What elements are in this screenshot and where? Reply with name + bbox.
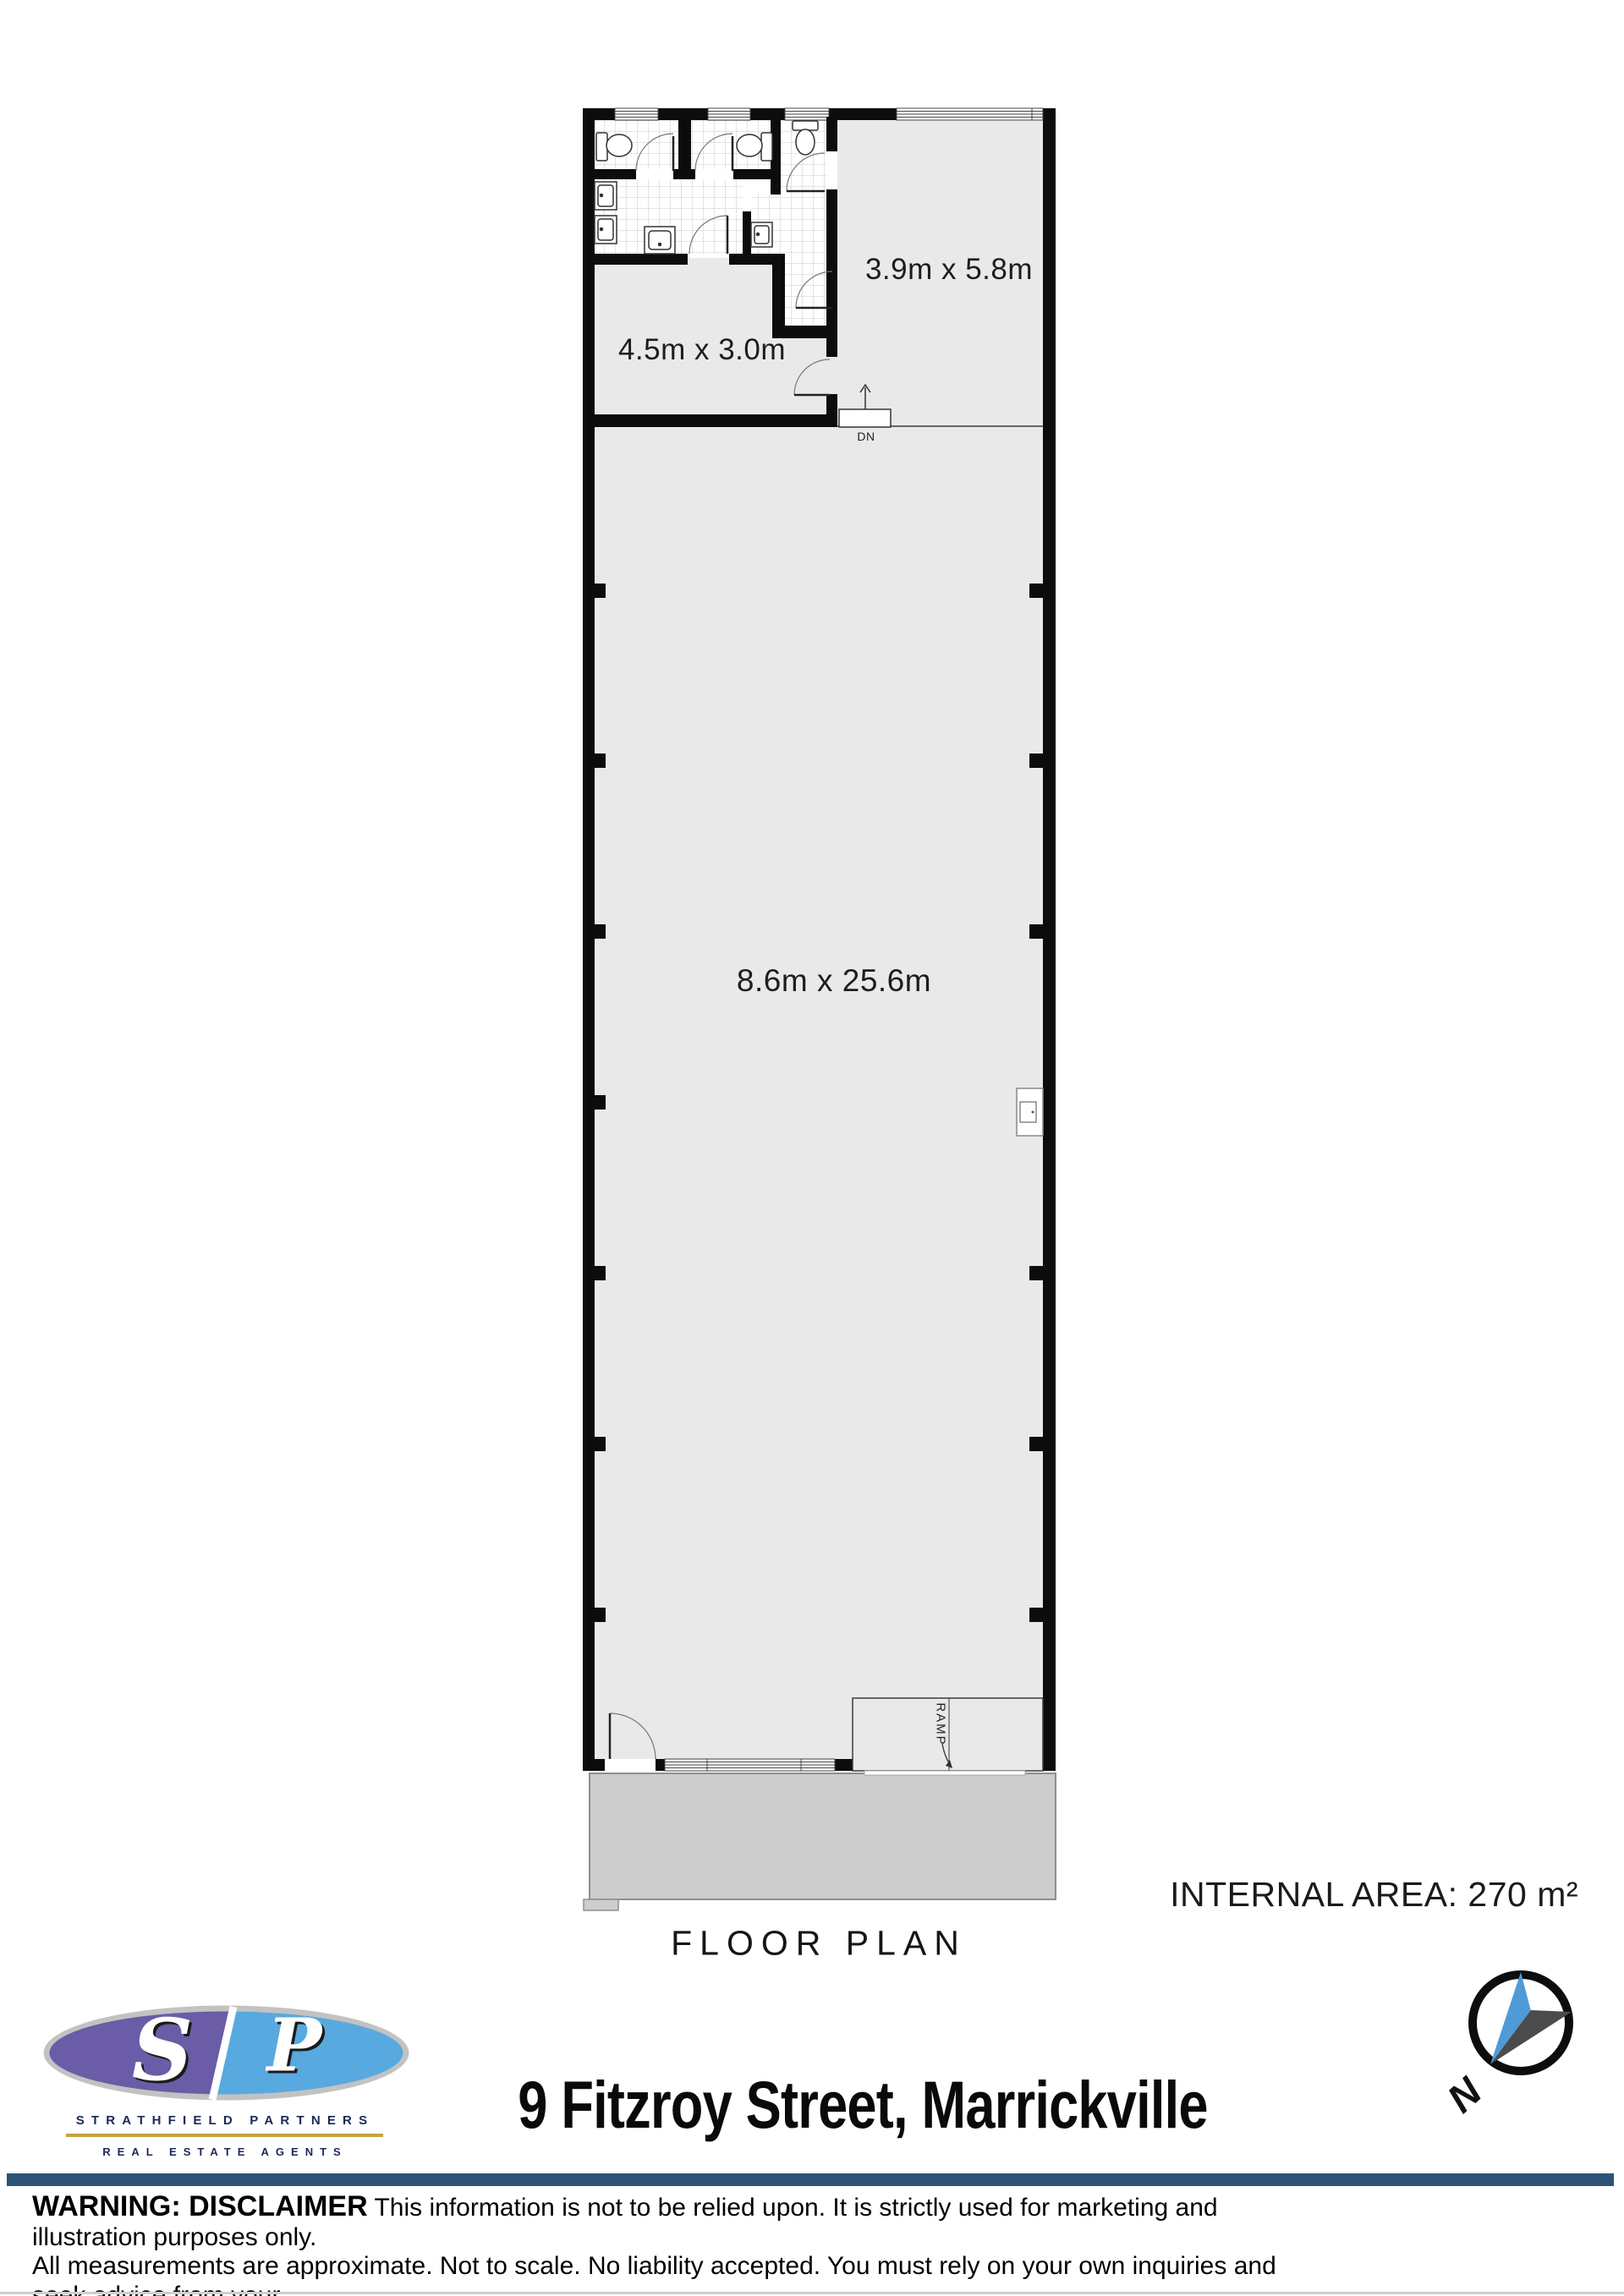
floor-plan-title: FLOOR PLAN bbox=[671, 1924, 967, 1964]
logo-letter-s: S bbox=[132, 2000, 193, 2100]
footer-divider-bar bbox=[7, 2173, 1614, 2186]
logo-letter-p: P bbox=[267, 2003, 322, 2089]
wall-cupboard bbox=[1017, 1088, 1043, 1136]
internal-area-text: INTERNAL AREA: 270 m² bbox=[1015, 1875, 1578, 1915]
logo-icon bbox=[43, 2004, 409, 2102]
page-bottom-rule bbox=[0, 2292, 1624, 2294]
room-label-39: 3.9m x 5.8m bbox=[865, 253, 1033, 287]
disclaimer-text: WARNING: DISCLAIMER This information is … bbox=[32, 2192, 1309, 2296]
compass-icon bbox=[1473, 1972, 1572, 2071]
porch bbox=[590, 1773, 1056, 1899]
ramp-label: RAMP bbox=[934, 1702, 948, 1745]
room-label-main: 8.6m x 25.6m bbox=[737, 963, 931, 999]
disclaimer-lead: WARNING: DISCLAIMER bbox=[32, 2190, 368, 2222]
disclaimer-line-2: All measurements are approximate. Not to… bbox=[32, 2252, 1309, 2296]
window-top-1 bbox=[615, 108, 658, 120]
company-name: STRATHFIELD PARTNERS bbox=[34, 2113, 416, 2128]
window-top-2 bbox=[708, 108, 750, 120]
sink-icon bbox=[595, 216, 617, 244]
room-label-45: 4.5m x 3.0m bbox=[618, 333, 786, 367]
window-top-long bbox=[897, 108, 1043, 120]
ramp bbox=[853, 1698, 1043, 1775]
sink-icon bbox=[751, 222, 772, 247]
property-address: 9 Fitzroy Street, Marrickville bbox=[511, 2070, 1215, 2140]
stair-dn-label: DN bbox=[857, 430, 875, 443]
tiles-corridor-lower bbox=[785, 254, 826, 326]
window-top-3 bbox=[785, 108, 829, 120]
window-bottom bbox=[665, 1759, 835, 1771]
porch-step bbox=[584, 1899, 618, 1910]
gold-divider bbox=[66, 2134, 383, 2137]
company-tagline: REAL ESTATE AGENTS bbox=[34, 2145, 416, 2158]
sink-icon bbox=[595, 182, 617, 210]
floor-plan-page: 3.9m x 5.8m 4.5m x 3.0m 8.6m x 25.6m DN … bbox=[0, 0, 1624, 2296]
vanity-sink-icon bbox=[645, 227, 675, 254]
disclaimer-line-1: WARNING: DISCLAIMER This information is … bbox=[32, 2192, 1309, 2252]
